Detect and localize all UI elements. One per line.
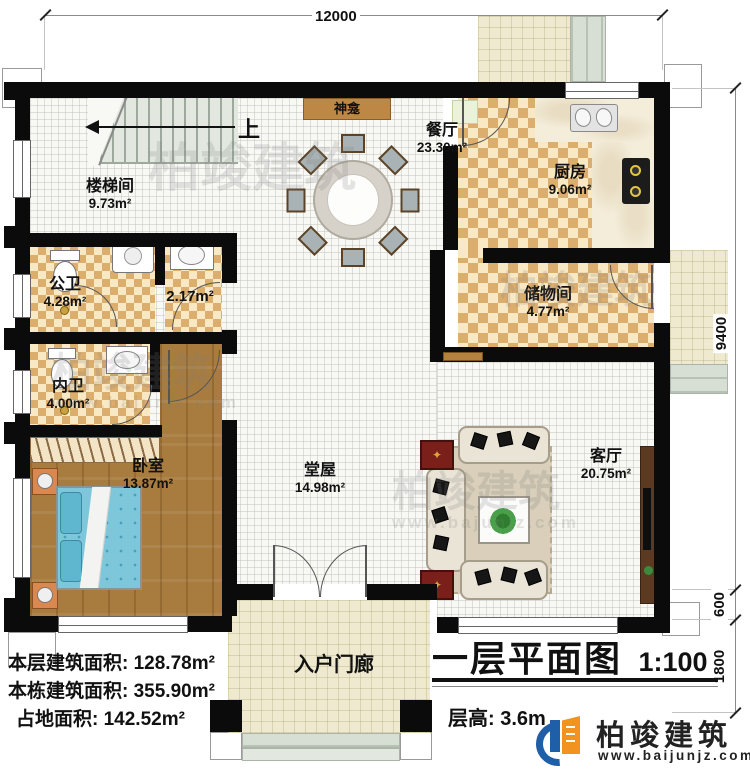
page-title: 一层平面图 <box>432 638 622 679</box>
wall-pilaster <box>4 598 30 632</box>
bed-pillow <box>60 492 82 534</box>
sofa-pillow <box>522 432 540 450</box>
room-label-stairwell: 楼梯间 9.73m² <box>58 178 162 212</box>
stove-burner <box>630 165 641 176</box>
brand-logo-icon <box>536 712 590 770</box>
wall <box>430 250 445 360</box>
logo-window-slit <box>566 740 575 742</box>
window <box>58 616 188 633</box>
floor-height: 层高: 3.6m <box>448 702 546 731</box>
floor-plan: 12000 9400 600 1800 上 <box>0 0 750 780</box>
sofa-pillow <box>432 478 449 495</box>
sofa <box>460 560 548 600</box>
dim-label-right-main: 9400 <box>713 314 730 353</box>
dim-extension <box>662 15 663 70</box>
dining-chair <box>401 189 420 213</box>
dining-chair <box>341 248 365 267</box>
stat-floor-area: 本层建筑面积: 128.78m² <box>8 650 215 678</box>
wall-pilaster <box>4 226 30 248</box>
toilet-tank <box>48 348 76 359</box>
sink-basin <box>178 245 205 265</box>
window <box>13 140 31 198</box>
stairs-up-label: 上 <box>238 112 260 144</box>
sink-basin <box>114 351 140 369</box>
dim-extension <box>44 15 45 70</box>
wall <box>30 332 228 344</box>
stat-building-area: 本栋建筑面积: 355.90m² <box>8 678 215 706</box>
wall <box>222 330 237 354</box>
wall <box>155 247 165 285</box>
back-porch-steps <box>570 16 606 82</box>
bedroom-door-leaf <box>168 350 170 404</box>
nightstand-lamp <box>37 473 53 489</box>
sofa <box>458 426 550 464</box>
wall <box>30 425 162 437</box>
sofa-pillow <box>501 567 518 584</box>
tv-plant <box>644 566 653 575</box>
wall-pilaster <box>4 422 30 444</box>
brand-website: www.baijunjz.com <box>598 748 750 763</box>
room-label-entry-porch: 入户门廊 <box>232 654 436 677</box>
room-label-bedroom: 卧室 13.87m² <box>96 458 200 492</box>
wall-pilaster <box>4 328 30 350</box>
title-block: 一层平面图 1:100 <box>432 630 708 682</box>
porch-step <box>242 748 400 761</box>
plant <box>490 508 516 534</box>
tv <box>643 488 651 550</box>
stairs-up-arrow <box>97 126 235 128</box>
dim-extension <box>672 88 735 89</box>
title-underline <box>432 678 718 682</box>
area-stats: 本层建筑面积: 128.78m² 本栋建筑面积: 355.90m² 占地面积: … <box>8 650 215 734</box>
floor-kitchen-passage <box>458 248 483 263</box>
title-underline-thin <box>432 686 718 687</box>
washing-machine-drum <box>124 247 142 265</box>
sofa-pillow <box>474 568 491 585</box>
entry-door-leaf <box>365 545 367 597</box>
logo-window-slit <box>566 726 575 728</box>
sofa-pillow <box>524 568 542 586</box>
stove-burner <box>630 186 641 197</box>
logo-tower-orange <box>562 716 580 754</box>
room-label-storage: 储物间 4.77m² <box>496 286 600 320</box>
dining-chair <box>341 134 365 153</box>
sofa-pillow <box>470 432 488 450</box>
room-label-inner-bath: 内卫 4.00m² <box>16 378 120 412</box>
dim-label-right-step: 600 <box>711 589 728 620</box>
logo-window-slit <box>566 733 575 735</box>
toilet-tank <box>50 250 80 261</box>
dining-table-top <box>327 174 379 226</box>
wall <box>483 248 654 263</box>
room-label-public-bath: 公卫 4.28m² <box>13 276 117 310</box>
side-balcony-steps <box>670 364 728 394</box>
plan-scale: 1:100 <box>638 647 707 677</box>
room-label-main-hall: 堂屋 14.98m² <box>268 462 372 496</box>
wall <box>443 146 458 250</box>
stat-land-area: 占地面积: 142.52m² <box>8 706 215 734</box>
sofa-pillow <box>497 431 514 448</box>
porch-step <box>242 733 400 748</box>
stairs-up-arrowhead <box>85 120 99 134</box>
storage-door-leaf <box>651 265 653 309</box>
dim-label-top: 12000 <box>312 8 360 25</box>
room-label-kitchen: 厨房 9.06m² <box>518 164 622 198</box>
room-label-dining: 餐厅 23.30m² <box>390 122 494 156</box>
wall-pilaster <box>4 82 30 100</box>
wall <box>222 420 237 616</box>
wall <box>654 82 670 263</box>
wall <box>30 233 228 247</box>
window <box>565 82 639 99</box>
nightstand-lamp <box>37 587 53 603</box>
room-label-bath-vestibule: 2.17m² <box>138 288 242 305</box>
bed-pillow <box>60 540 82 582</box>
back-porch-tile <box>478 16 570 82</box>
logo-tower-blue <box>550 720 560 752</box>
wall <box>367 584 437 600</box>
sofa-pillow <box>433 535 450 552</box>
dining-chair <box>287 189 306 213</box>
sofa-pillow <box>431 506 449 524</box>
wall <box>222 233 237 283</box>
shrine-cabinet: 神龛 <box>303 98 391 120</box>
window <box>13 478 31 578</box>
counter-ledge <box>443 352 483 361</box>
entry-door-leaf <box>273 545 275 597</box>
room-label-living: 客厅 20.75m² <box>554 448 658 482</box>
porch-pillar-base <box>210 732 242 760</box>
sofa <box>426 468 466 572</box>
porch-pillar <box>400 700 432 732</box>
porch-pillar-base <box>400 732 432 760</box>
side-table: ✦ <box>420 440 454 470</box>
